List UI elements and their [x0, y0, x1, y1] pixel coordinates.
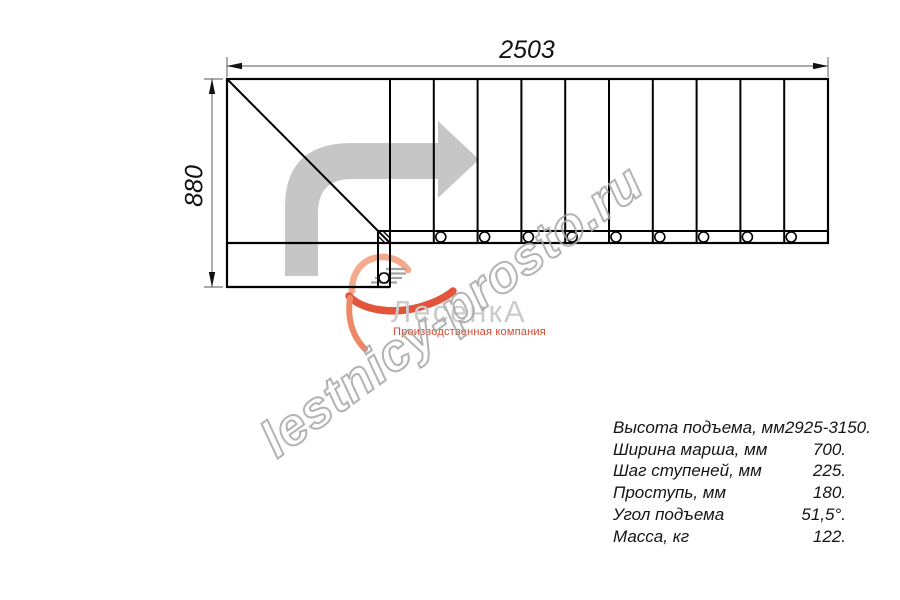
spec-label: Проступь, мм	[613, 482, 726, 504]
bolt-hole	[786, 232, 796, 242]
spec-label: Масса, кг	[613, 526, 689, 548]
spec-row: Угол подъема51,5°.	[613, 504, 846, 526]
spec-value: 2925-3150.	[785, 417, 871, 439]
height-dimension-label: 880	[181, 165, 210, 207]
bolt-hole	[480, 232, 490, 242]
spec-row: Высота подъема, мм2925-3150.	[613, 417, 846, 439]
spec-value: 122.	[813, 526, 846, 548]
spec-label: Шаг ступеней, мм	[613, 460, 762, 482]
winder-diagonal	[227, 79, 390, 243]
bolt-hole	[742, 232, 752, 242]
spec-row: Шаг ступеней, мм225.	[613, 460, 846, 482]
bolt-hole	[699, 232, 709, 242]
spec-table: Высота подъема, мм2925-3150.Ширина марша…	[613, 417, 846, 547]
spec-label: Угол подъема	[613, 504, 724, 526]
bolt-hole	[436, 232, 446, 242]
bolt-hole	[379, 273, 389, 283]
spec-value: 700.	[813, 439, 846, 461]
spec-row: Проступь, мм180.	[613, 482, 846, 504]
staircase-drawing-page: ЛесенкА Производственная компания	[0, 0, 900, 600]
spec-value: 51,5°.	[801, 504, 846, 526]
bolt-hole	[655, 232, 665, 242]
spec-row: Ширина марша, мм700.	[613, 439, 846, 461]
spec-label: Высота подъема, мм	[613, 417, 785, 439]
width-dimension-label: 2503	[499, 36, 555, 65]
spec-value: 180.	[813, 482, 846, 504]
spec-value: 225.	[813, 460, 846, 482]
bolt-hole	[611, 232, 621, 242]
spec-label: Ширина марша, мм	[613, 439, 767, 461]
spec-row: Масса, кг122.	[613, 526, 846, 548]
